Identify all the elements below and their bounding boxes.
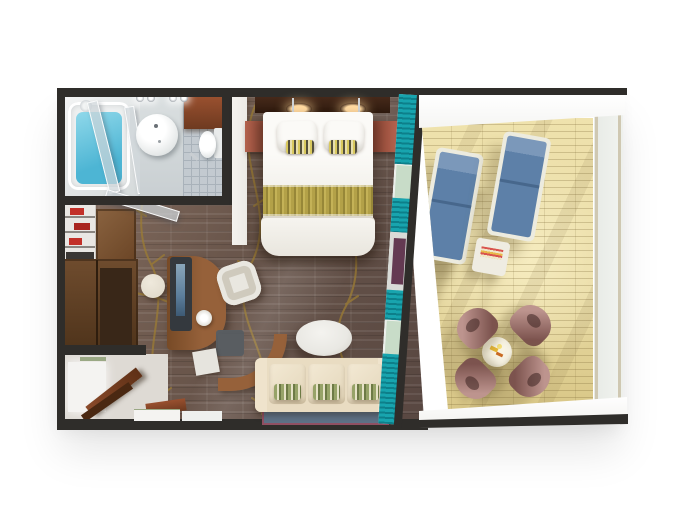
corridor-door-threshold [134, 409, 180, 421]
sink-faucet-dot [154, 124, 158, 128]
monitor-screen [176, 264, 185, 316]
entry-lintel [80, 357, 106, 361]
corridor-door-threshold-2 [182, 411, 222, 421]
coffee-table [296, 320, 352, 356]
sofa-pillow-green [313, 384, 340, 400]
floorplan-scene [0, 0, 680, 510]
sofa-pillow-green [352, 384, 379, 400]
table-food-item [496, 352, 504, 358]
balcony-deck [421, 118, 593, 410]
balcony-railing [593, 96, 623, 418]
vanity-sink [136, 114, 178, 156]
wall-bathroom-divider [222, 88, 232, 205]
chair-cutout [463, 316, 482, 335]
toilet-bowl [199, 131, 216, 158]
wall-bathroom-bottom [57, 196, 232, 205]
sofa-arm-left [255, 358, 267, 412]
balcony-top-edge [419, 88, 627, 95]
chair-cutout [525, 370, 544, 389]
desk-lamp-icon [196, 310, 212, 326]
railing-post [618, 96, 621, 418]
railing-post [595, 96, 598, 418]
white-wall-panel [232, 97, 247, 245]
sink-drain-dot [158, 140, 161, 143]
side-table [471, 237, 510, 276]
towel-stripes [480, 246, 503, 260]
wardrobe-upper-panel [96, 209, 136, 261]
wardrobe-recess [100, 268, 132, 352]
accent-pillow-right [329, 140, 357, 154]
shelf-red-item [74, 223, 90, 230]
bathroom-door-open [184, 97, 222, 129]
accent-pillow-left [286, 140, 314, 154]
bed-duvet [261, 216, 375, 256]
wall-closet-entry-divider [57, 345, 146, 355]
wall-top [57, 88, 423, 97]
shelf-red-item [70, 208, 84, 215]
chair-cutout [524, 311, 543, 330]
nightstand-right [371, 121, 398, 152]
shelf-red-item [69, 238, 82, 245]
desk-drawer-unit [192, 348, 220, 376]
chair-cutout [463, 374, 482, 393]
wall-left [57, 88, 65, 430]
ottoman-stool [141, 274, 165, 298]
table-glass-item [497, 344, 502, 349]
sofa-pillow-green [274, 384, 301, 400]
sofa [255, 358, 390, 412]
bed-runner [263, 185, 373, 216]
headboard [255, 97, 390, 113]
